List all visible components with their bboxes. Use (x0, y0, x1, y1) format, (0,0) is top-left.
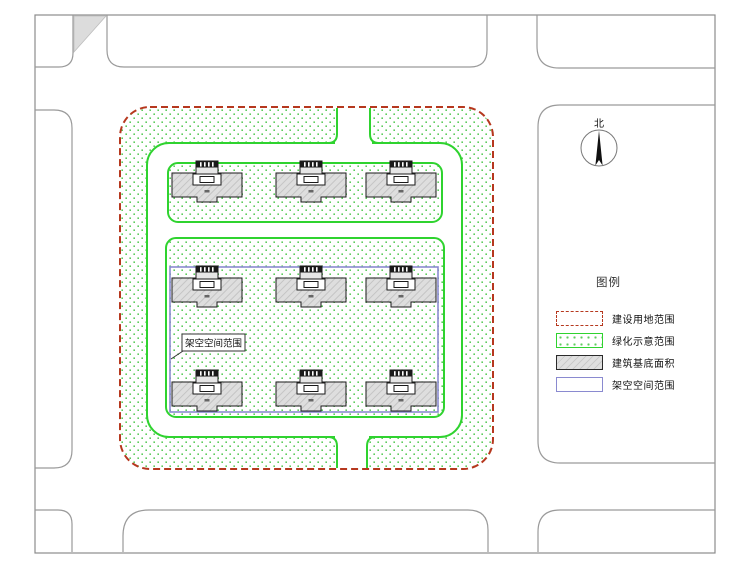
blue-outline-swatch-icon (556, 377, 603, 392)
gray-hatched-swatch-icon (556, 355, 603, 370)
legend-item-building-footprint: 建筑基底面积 (556, 355, 706, 370)
greenery-outline-gap-top (335, 140, 372, 146)
legend-item-elevated-space: 架空空间范围 (556, 377, 706, 392)
north-label: 北 (594, 118, 604, 130)
north-arrow-needle (595, 131, 602, 166)
street-block-top-middle (107, 15, 487, 67)
legend-item-greenery: 绿化示意范围 (556, 333, 706, 348)
legend-title: 图例 (596, 274, 706, 290)
north-arrow: 北 (581, 118, 617, 166)
street-block-bottom-left (35, 510, 72, 552)
legend-item-label: 建筑基底面积 (612, 355, 675, 370)
green-dotted-swatch-icon (556, 333, 603, 348)
street-block-bottom-middle (123, 510, 488, 552)
street-block-left (35, 110, 72, 468)
site-plan-page: 架空空间范围 北 图例 建设用地范围 绿化示意范围 建筑基底面积 架空空间范围 (0, 0, 729, 562)
north-entrance-road (337, 109, 370, 142)
callout-text: 架空空间范围 (185, 338, 242, 350)
legend-item-label: 建设用地范围 (612, 311, 675, 326)
red-dashed-swatch-icon (556, 311, 603, 326)
legend-item-label: 绿化示意范围 (612, 333, 675, 348)
shaded-corner-triangle (74, 16, 106, 52)
street-block-top-left (35, 15, 73, 67)
south-entrance-road (337, 439, 367, 468)
street-block-top-right (537, 15, 715, 68)
street-block-bottom-right (538, 510, 715, 552)
legend-item-construction-land: 建设用地范围 (556, 311, 706, 326)
legend: 图例 建设用地范围 绿化示意范围 建筑基底面积 架空空间范围 (556, 274, 706, 399)
legend-item-label: 架空空间范围 (612, 377, 675, 392)
greenery-outline-gap-bottom (335, 434, 369, 440)
buildings (172, 161, 436, 411)
